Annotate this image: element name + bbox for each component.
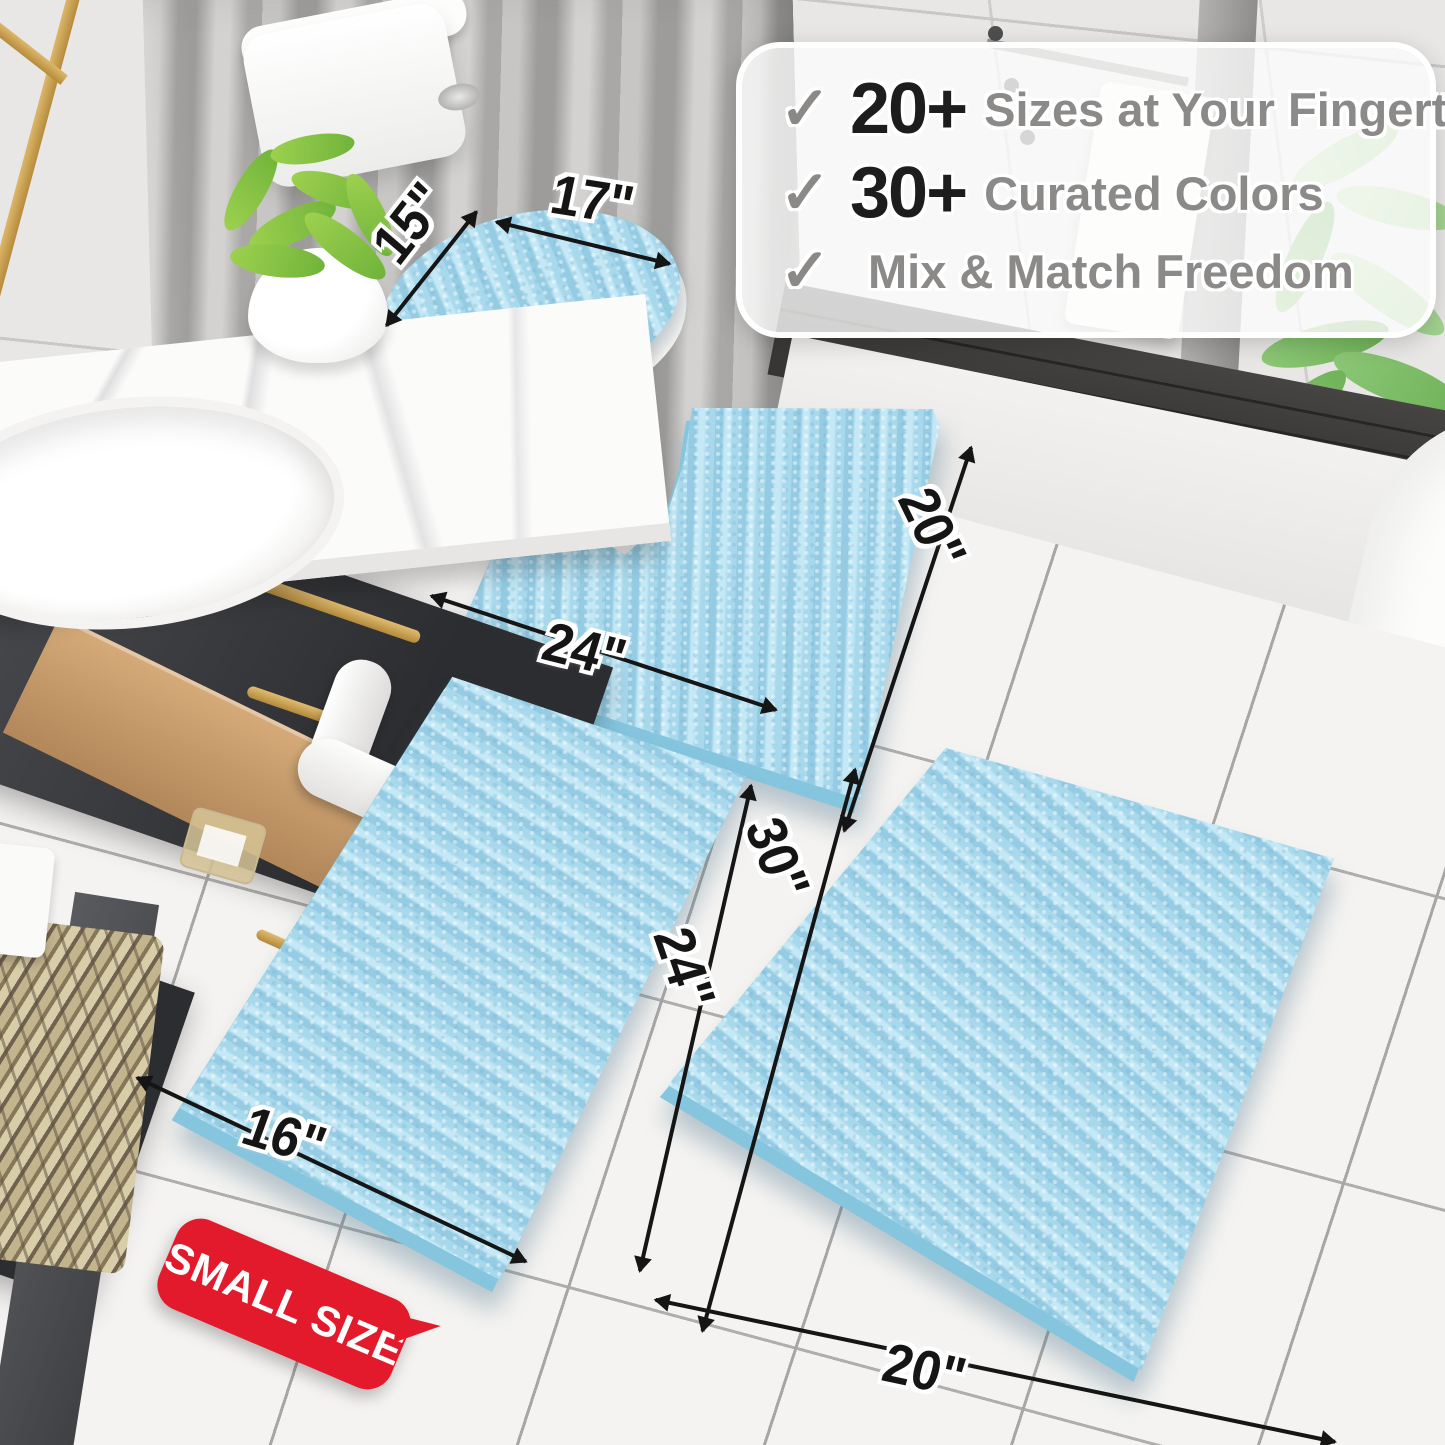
callout-row-mix-match: ✓ Mix & Match Freedom [780,236,1392,306]
checkmark-icon: ✓ [780,74,832,144]
product-image: 15" 17" 24" 20" 16" 24" 30" 20" ✓ 20+ Si… [0,0,1445,1445]
plant-leaf [228,239,327,284]
feature-callout-panel: ✓ 20+ Sizes at Your Fingertips ✓ 30+ Cur… [736,42,1436,338]
callout-row-colors: ✓ 30+ Curated Colors [780,152,1392,234]
callout-text: Sizes at Your Fingertips [984,82,1445,137]
callout-count: 30+ [850,152,966,234]
plant-leaf [268,129,356,169]
callout-count: 20+ [850,68,966,150]
dim-label-lid-width: 17" [546,166,638,234]
checkmark-icon: ✓ [780,158,832,228]
callout-text: Mix & Match Freedom [868,244,1354,299]
checkmark-icon: ✓ [780,236,832,306]
callout-text: Curated Colors [984,166,1324,221]
towel-bar-knob [988,26,1003,41]
callout-row-sizes: ✓ 20+ Sizes at Your Fingertips [780,68,1392,150]
